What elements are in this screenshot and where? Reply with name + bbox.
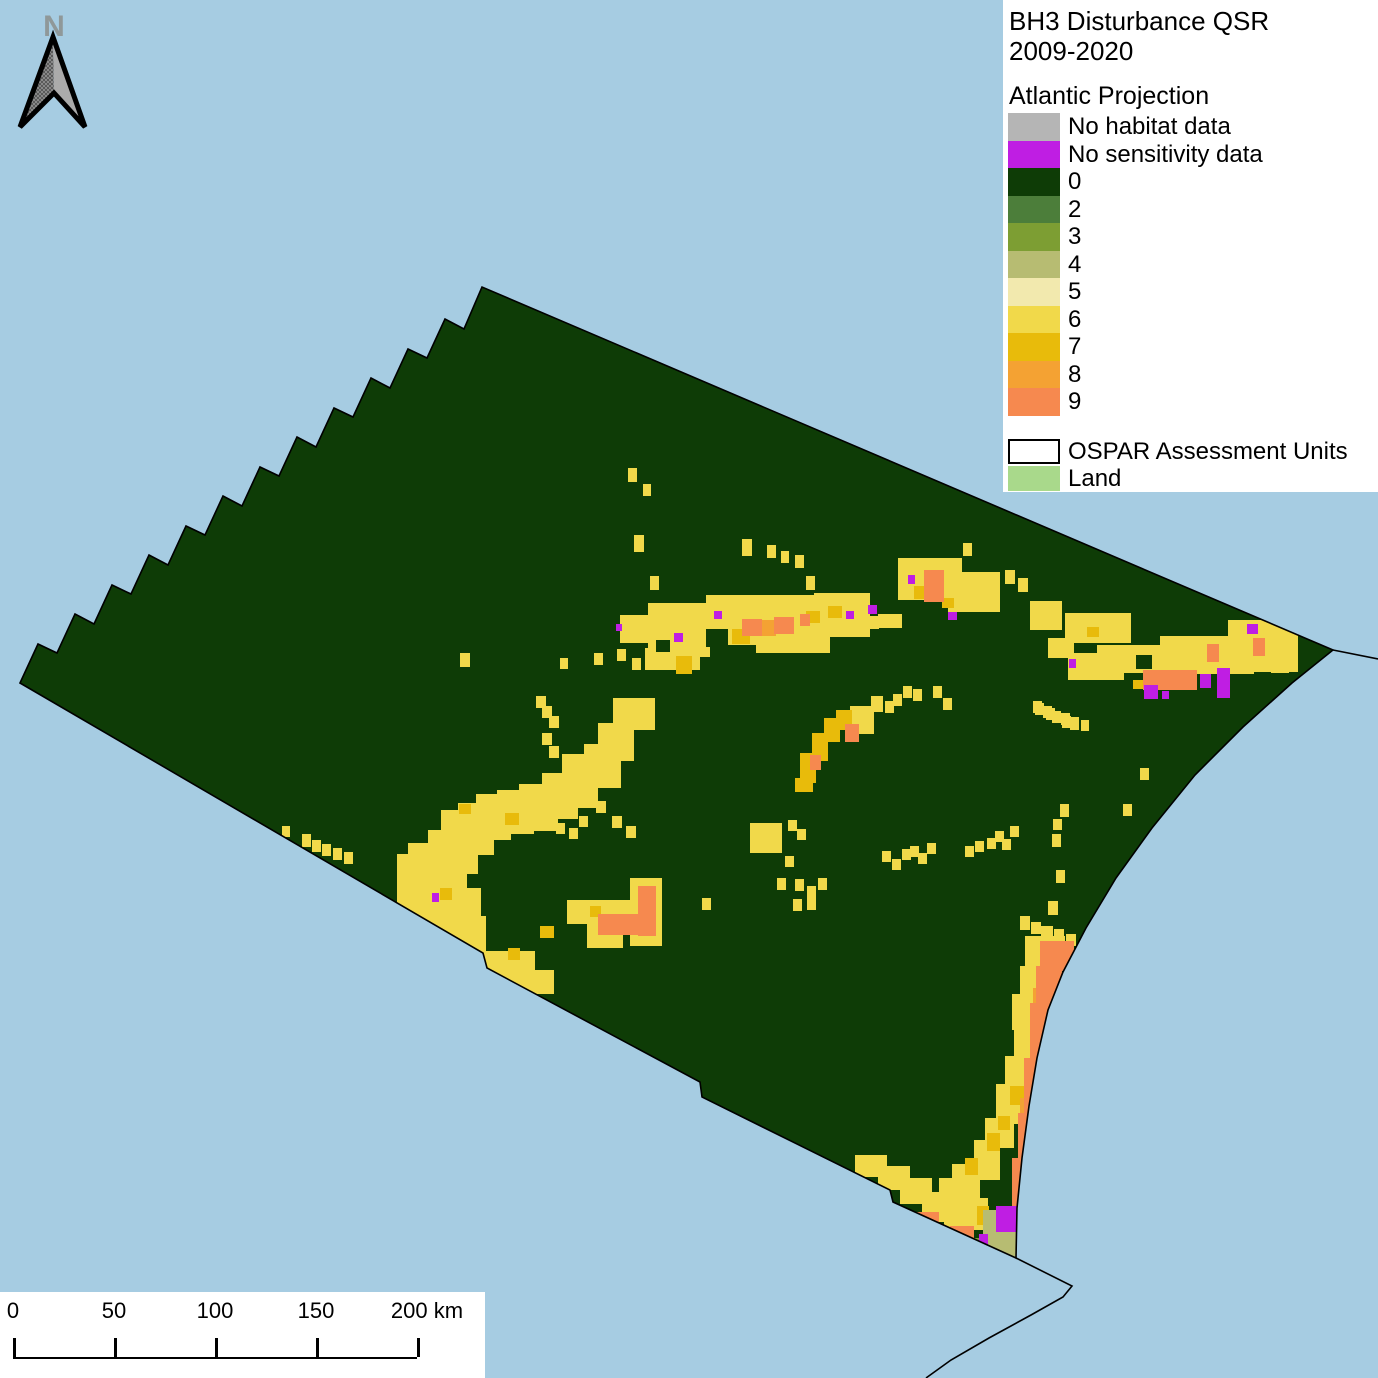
raster-cell-6 (781, 551, 789, 563)
legend-swatch-0 (1008, 168, 1060, 196)
raster-cell-6 (927, 843, 936, 854)
raster-cell-9 (742, 619, 762, 636)
raster-cell-nsd (714, 611, 722, 619)
legend-swatch-8 (1008, 361, 1060, 389)
legend-title-line1: BH3 Disturbance QSR (1009, 6, 1269, 36)
legend-item-3: 3 (1003, 223, 1378, 251)
raster-cell-6 (1081, 720, 1089, 731)
legend-item-7: 7 (1003, 333, 1378, 361)
raster-cell-6 (818, 878, 827, 890)
raster-cell-9 (845, 724, 859, 742)
raster-cell-6 (1062, 716, 1071, 728)
raster-cell-9 (774, 617, 794, 634)
raster-cell-6 (893, 694, 902, 706)
raster-cell-6 (871, 696, 883, 712)
raster-cell-6 (1060, 804, 1069, 817)
raster-cell-6 (628, 468, 637, 482)
raster-cell-nsd (868, 605, 877, 614)
raster-cell-6 (793, 899, 802, 911)
legend-item-nhd: No habitat data (1003, 113, 1378, 141)
raster-cell-6 (870, 616, 879, 629)
legend-panel: BH3 Disturbance QSR 2009-2020 Atlantic P… (1003, 0, 1378, 492)
raster-cell-nsd (616, 624, 622, 631)
scale-bar-baseline (13, 1357, 417, 1359)
raster-cell-6 (1020, 916, 1030, 930)
legend-items: No habitat dataNo sensitivity data023456… (1003, 113, 1378, 416)
raster-cell-6 (882, 615, 891, 628)
legend-item-6: 6 (1003, 306, 1378, 334)
raster-cell-6 (797, 829, 806, 840)
raster-cell-6 (807, 898, 816, 910)
raster-cell-6 (1052, 711, 1061, 723)
legend-overlay-swatch-land (1008, 466, 1060, 491)
raster-cell-9 (800, 614, 810, 626)
raster-cell-6 (756, 637, 830, 653)
raster-cell-7 (676, 656, 692, 674)
legend-overlay-item-land: Land (1003, 465, 1378, 492)
raster-cell-6 (975, 841, 984, 852)
raster-cell-6 (312, 840, 321, 852)
raster-cell-6 (282, 826, 290, 837)
raster-cell-6 (943, 698, 952, 710)
legend-overlay-label-land: Land (1068, 465, 1121, 492)
raster-cell-6 (612, 816, 622, 828)
raster-cell-6 (918, 853, 927, 864)
raster-cell-6 (460, 653, 470, 667)
raster-cell-7 (828, 606, 842, 618)
raster-cell-9 (1207, 644, 1219, 662)
legend-item-0: 0 (1003, 168, 1378, 196)
legend-label-5: 5 (1068, 278, 1081, 306)
legend-item-5: 5 (1003, 278, 1378, 306)
raster-cell-6 (1043, 706, 1052, 718)
legend-swatch-4 (1008, 251, 1060, 279)
legend-label-0: 0 (1068, 168, 1081, 196)
raster-cell-6 (750, 823, 782, 853)
legend-label-nsd: No sensitivity data (1068, 141, 1263, 169)
raster-cell-6 (556, 823, 565, 834)
raster-cell-6 (788, 820, 797, 831)
raster-cell-6 (594, 653, 603, 665)
legend-section-title: Atlantic Projection (1009, 82, 1209, 111)
raster-cell-6 (344, 852, 353, 864)
raster-cell-6 (1018, 578, 1028, 592)
raster-cell-6 (1056, 870, 1065, 883)
legend-item-8: 8 (1003, 361, 1378, 389)
raster-cell-nsd (908, 575, 915, 584)
raster-cell-nsd (1217, 668, 1230, 698)
raster-cell-6 (913, 689, 922, 701)
raster-cell-0 (706, 629, 728, 647)
legend-swatch-nsd (1008, 141, 1060, 169)
legend-swatch-6 (1008, 306, 1060, 334)
raster-cell-6 (1052, 834, 1061, 847)
raster-cell-6 (1030, 601, 1062, 630)
raster-cell-7 (965, 1158, 978, 1175)
raster-cell-nsd (1069, 659, 1076, 668)
raster-cell-6 (987, 838, 996, 849)
raster-cell-nsd (432, 893, 439, 902)
raster-cell-6 (795, 879, 804, 891)
raster-cell-9 (638, 886, 656, 936)
raster-cell-9 (924, 570, 944, 602)
legend-label-6: 6 (1068, 306, 1081, 334)
raster-cell-nsd (846, 611, 854, 619)
scale-tick-150 (316, 1338, 319, 1357)
raster-cell-6 (702, 898, 711, 910)
raster-cell-9 (810, 755, 821, 770)
raster-cell-6 (807, 886, 816, 898)
raster-cell-6 (1031, 922, 1041, 934)
raster-cell-6 (1271, 658, 1289, 673)
legend-label-9: 9 (1068, 388, 1081, 416)
legend-swatch-nhd (1008, 113, 1060, 141)
raster-cell-6 (1054, 929, 1064, 939)
raster-cell-7 (508, 948, 520, 960)
raster-cell-6 (1041, 926, 1053, 938)
legend-item-nsd: No sensitivity data (1003, 141, 1378, 169)
raster-cell-6 (965, 846, 974, 857)
raster-cell-0 (656, 640, 670, 652)
raster-cell-6 (1010, 826, 1019, 837)
raster-cell-nsd (1200, 674, 1211, 688)
raster-cell-6 (892, 859, 901, 870)
raster-cell-7 (998, 1116, 1010, 1130)
legend-swatch-2 (1008, 196, 1060, 224)
raster-cell-6 (333, 848, 342, 860)
raster-cell-6 (910, 846, 919, 857)
raster-cell-6 (1140, 768, 1149, 780)
scale-label-150: 150 (256, 1298, 376, 1324)
raster-cell-nsd (1247, 624, 1258, 634)
raster-cell-6 (643, 484, 651, 496)
raster-cell-6 (882, 851, 891, 862)
legend-label-2: 2 (1068, 196, 1081, 224)
legend-label-7: 7 (1068, 333, 1081, 361)
legend-overlay-item-ospar: OSPAR Assessment Units (1003, 438, 1378, 465)
scale-tick-100 (215, 1338, 218, 1357)
legend-overlay-items: OSPAR Assessment UnitsLand (1003, 438, 1378, 492)
raster-cell-6 (560, 658, 568, 669)
raster-cell-0 (1136, 655, 1152, 669)
legend-overlay-label-ospar: OSPAR Assessment Units (1068, 438, 1348, 465)
raster-cell-6 (902, 849, 911, 860)
raster-cell-6 (1005, 570, 1015, 584)
raster-cell-6 (1070, 718, 1079, 730)
raster-cell-6 (1053, 819, 1062, 830)
raster-cell-7 (505, 813, 519, 825)
raster-cell-6 (569, 828, 578, 839)
raster-cell-7 (540, 926, 554, 938)
raster-cell-8 (760, 620, 776, 636)
raster-cell-6 (795, 555, 804, 568)
raster-cell-6 (785, 856, 794, 867)
raster-cell-6 (806, 576, 815, 590)
raster-cell-7 (440, 888, 452, 900)
raster-cell-6 (634, 535, 644, 552)
raster-cell-6 (302, 834, 311, 847)
raster-cell-7 (1087, 627, 1099, 637)
legend-label-3: 3 (1068, 223, 1081, 251)
raster-cell-6 (948, 572, 1000, 612)
raster-cell-nsd (996, 1206, 1019, 1232)
raster-cell-7 (987, 1133, 1000, 1151)
raster-cell-6 (767, 545, 776, 558)
raster-cell-6 (933, 686, 942, 698)
legend-item-4: 4 (1003, 251, 1378, 279)
legend-label-8: 8 (1068, 361, 1081, 389)
legend-label-4: 4 (1068, 251, 1081, 279)
legend-item-9: 9 (1003, 388, 1378, 416)
legend-title-line2: 2009-2020 (1009, 36, 1269, 66)
legend-swatch-3 (1008, 223, 1060, 251)
raster-cell-9 (598, 914, 640, 935)
raster-cell-6 (632, 658, 641, 670)
legend-swatch-7 (1008, 333, 1060, 361)
legend-swatch-5 (1008, 278, 1060, 306)
raster-cell-6 (617, 649, 626, 661)
scale-tick-200 (417, 1338, 420, 1357)
legend-item-2: 2 (1003, 196, 1378, 224)
raster-cell-6 (549, 716, 559, 728)
raster-cell-6 (1123, 804, 1132, 816)
raster-cell-nsd (1144, 685, 1158, 699)
raster-cell-6 (596, 801, 606, 813)
raster-cell-6 (963, 543, 972, 556)
raster-cell-6 (549, 746, 559, 758)
scale-label-200: 200 km (367, 1298, 487, 1324)
raster-cell-6 (1033, 701, 1042, 713)
raster-cell-6 (777, 878, 786, 890)
scale-tick-0 (13, 1338, 16, 1357)
raster-cell-nsd (1162, 691, 1169, 699)
map-export-page: N BH3 Disturbance QSR 2009-2020 Atlantic… (0, 0, 1378, 1378)
raster-cell-6 (1048, 901, 1058, 915)
scale-tick-50 (114, 1338, 117, 1357)
raster-cell-nsd (674, 633, 683, 642)
raster-cell-6 (579, 816, 588, 827)
raster-cell-6 (742, 539, 752, 556)
legend-label-nhd: No habitat data (1068, 113, 1231, 141)
raster-cell-6 (885, 701, 894, 713)
legend-title: BH3 Disturbance QSR 2009-2020 (1009, 6, 1269, 66)
raster-cell-6 (542, 733, 552, 745)
raster-cell-7 (459, 804, 471, 814)
raster-cell-7 (1133, 680, 1143, 689)
legend-swatch-9 (1008, 388, 1060, 416)
raster-cell-6 (626, 826, 636, 838)
raster-cell-6 (903, 686, 912, 698)
raster-cell-6 (650, 576, 659, 590)
raster-cell-nsd (948, 612, 957, 620)
legend-overlay-swatch-ospar (1008, 439, 1060, 464)
scale-bar: 050100150200 km (0, 1292, 485, 1378)
raster-cell-6 (1002, 839, 1011, 850)
raster-cell-6 (322, 844, 331, 856)
raster-cell-9 (1253, 638, 1265, 656)
